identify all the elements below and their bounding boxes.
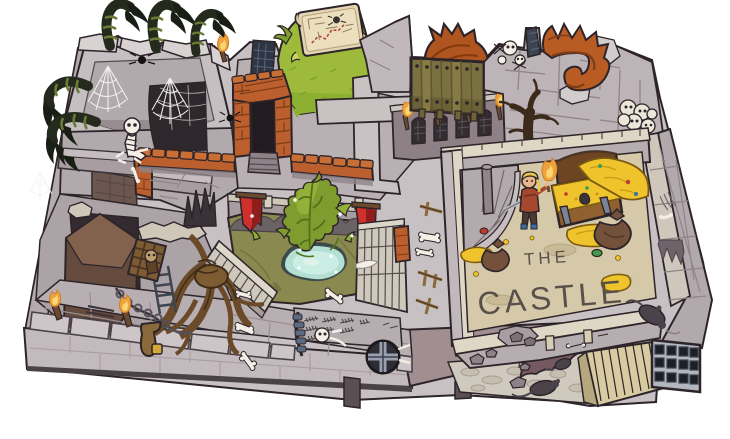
- svg-text:THE: THE: [523, 247, 570, 269]
